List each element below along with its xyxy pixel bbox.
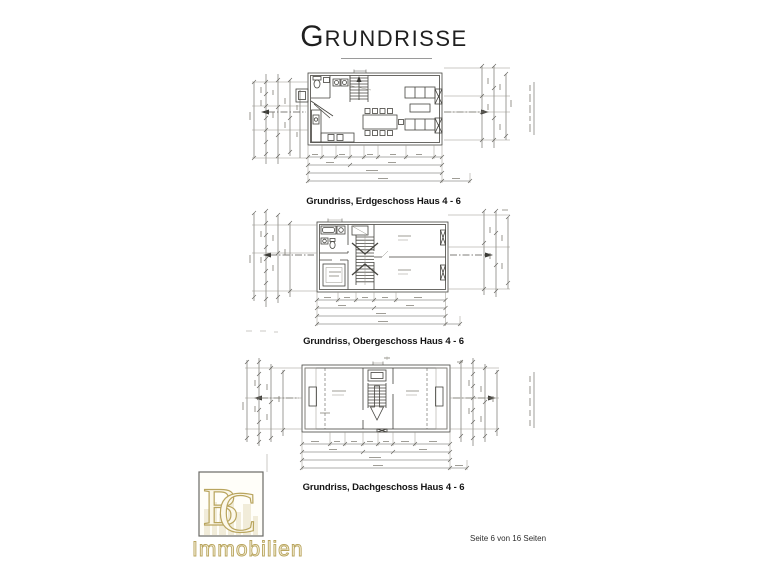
dimension-lines-bottom (306, 145, 472, 183)
window-symbols (354, 70, 442, 134)
staircase (368, 383, 386, 420)
floorplan-obergeschoss-drawing (238, 205, 545, 335)
dining-table-chairs (363, 109, 404, 136)
section-arrow-left (261, 110, 306, 115)
utility-fixtures (333, 79, 348, 86)
closet (368, 370, 386, 381)
company-logo-graphic: B C Immobilien (190, 453, 310, 563)
dimension-lines-left (243, 358, 302, 446)
dimension-lines-left (250, 74, 308, 164)
section-arrow-right (450, 253, 493, 258)
company-logo: B C Immobilien (190, 453, 310, 567)
floorplan-obergeschoss (238, 205, 545, 335)
staircase (347, 76, 371, 103)
furniture-box (323, 264, 345, 286)
dimension-lines-bottom (315, 292, 462, 326)
interior-walls (363, 368, 393, 429)
kitchen-counters (312, 110, 355, 142)
dashed-roof-lines (325, 368, 427, 429)
interior-walls (311, 76, 350, 119)
title-underline (341, 58, 432, 59)
page-title: GRUNDRISSE (0, 20, 768, 54)
floorplan-erdgeschoss-drawing (238, 60, 545, 186)
dimension-lines-bottom (300, 432, 469, 470)
scan-smudge (246, 331, 278, 332)
floorplan-erdgeschoss (238, 60, 545, 186)
page-title-rest: RUNDRISSE (325, 26, 468, 51)
logo-subtitle: Immobilien (192, 538, 304, 561)
closet (352, 226, 368, 235)
bathroom-fixtures (321, 226, 345, 249)
dimension-lines-right (444, 64, 511, 148)
page-number: Seite 6 von 16 Seiten (470, 534, 546, 543)
page-title-initial: G (300, 20, 324, 53)
wc-fixtures (313, 77, 330, 89)
window-symbols (328, 219, 446, 281)
caption-obergeschoss: Grundriss, Obergeschoss Haus 4 - 6 (230, 336, 537, 347)
drawing-reference-text-right (530, 82, 534, 135)
logo-monogram-c: C (218, 480, 257, 545)
top-dimension-mark (384, 357, 390, 361)
room-label-marks (398, 236, 411, 274)
dimension-lines-right (450, 358, 499, 446)
living-room-furniture (405, 87, 435, 130)
drawing-reference-text-right (530, 372, 534, 428)
roof-hatching (305, 368, 447, 429)
dimension-lines-right (448, 209, 510, 297)
document-page: GRUNDRISSE (0, 0, 768, 567)
entry-porch (296, 89, 308, 102)
dimension-lines-left (250, 209, 317, 307)
building-outline (302, 365, 450, 432)
